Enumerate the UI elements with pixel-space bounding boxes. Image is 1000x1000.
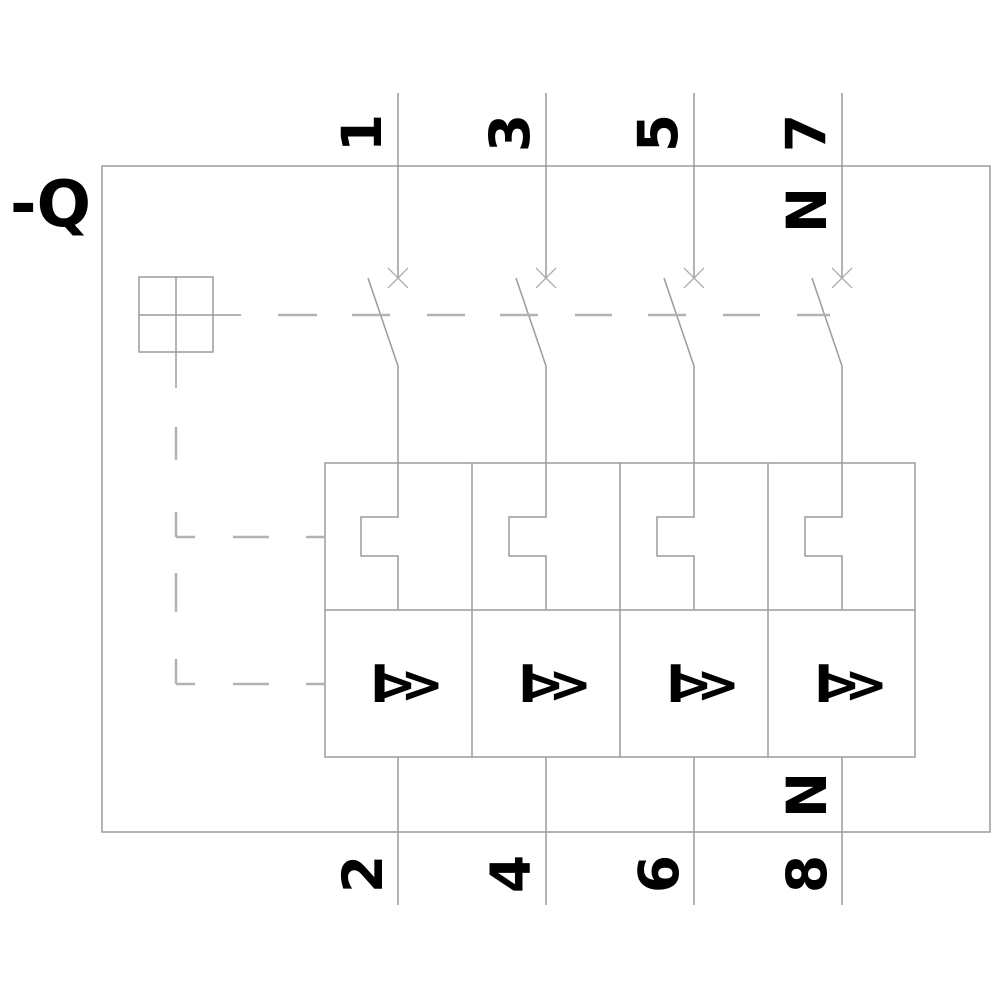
pole-3 — [657, 93, 694, 905]
pole-4-thermal-trip-element — [805, 463, 842, 610]
fixed-contact-crosses — [388, 268, 852, 288]
terminal-label-2: 2 — [331, 855, 395, 893]
pole-1-overcurrent-trip-label: I>> — [370, 655, 444, 715]
pole-4-moving-contact-blade — [812, 278, 842, 463]
pole-1-thermal-trip-element — [361, 463, 398, 610]
terminal-label-8: 8 — [775, 855, 839, 893]
circuit-breaker-diagram: -Q 1 3 5 7 N N I>> I>> I>> I>> 2 4 6 8 — [0, 0, 1000, 1000]
neutral-label-top: N — [775, 187, 839, 233]
mechanical-linkage — [176, 315, 830, 684]
device-reference-label: -Q — [10, 168, 91, 242]
solid-lines — [102, 93, 990, 905]
terminal-label-5: 5 — [626, 114, 690, 152]
pole-1 — [361, 93, 398, 905]
pole-4-overcurrent-trip-label: I>> — [814, 655, 888, 715]
pole-2 — [509, 93, 546, 905]
pole-3-overcurrent-trip-label: I>> — [666, 655, 740, 715]
terminal-label-6: 6 — [627, 855, 691, 893]
pole-2-overcurrent-trip-label: I>> — [518, 655, 592, 715]
mechanism-crosshair-icon — [139, 277, 241, 388]
pole-3-moving-contact-blade — [664, 278, 694, 463]
terminal-label-4: 4 — [479, 855, 543, 893]
pole-2-thermal-trip-element — [509, 463, 546, 610]
operating-mechanism — [139, 277, 241, 388]
labels: -Q 1 3 5 7 N N I>> I>> I>> I>> 2 4 6 8 — [10, 114, 888, 893]
terminal-label-3: 3 — [478, 114, 542, 152]
pole-3-thermal-trip-element — [657, 463, 694, 610]
terminal-label-1: 1 — [330, 114, 394, 152]
pole-2-moving-contact-blade — [516, 278, 546, 463]
terminal-label-7: 7 — [774, 114, 838, 152]
neutral-label-bottom: N — [775, 772, 839, 818]
pole-1-moving-contact-blade — [368, 278, 398, 463]
